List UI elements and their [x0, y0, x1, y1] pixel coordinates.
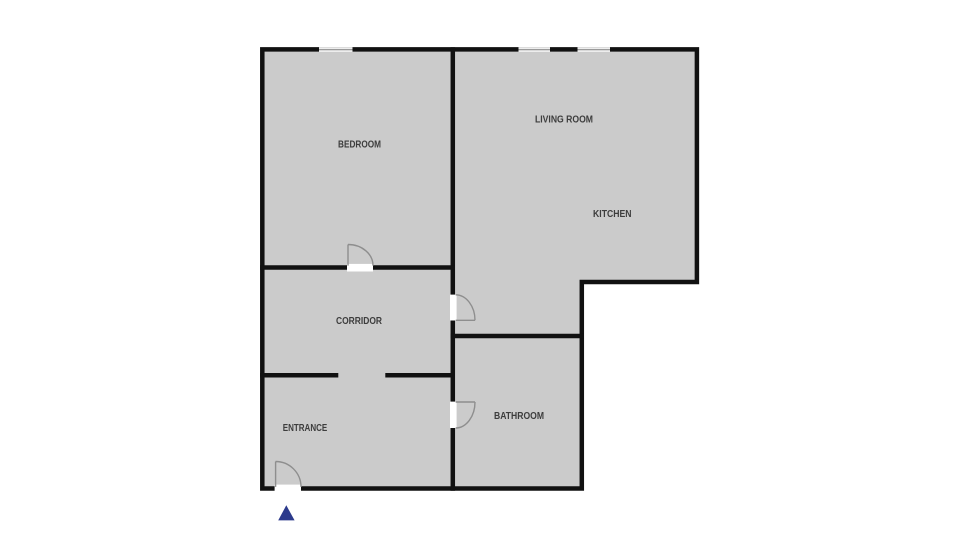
svg-text:CORRIDOR: CORRIDOR: [336, 316, 383, 327]
svg-text:LIVING ROOM: LIVING ROOM: [535, 114, 593, 125]
svg-text:BEDROOM: BEDROOM: [338, 140, 381, 151]
svg-text:KITCHEN: KITCHEN: [593, 209, 632, 220]
svg-text:BATHROOM: BATHROOM: [494, 411, 544, 422]
svg-text:ENTRANCE: ENTRANCE: [283, 423, 328, 434]
